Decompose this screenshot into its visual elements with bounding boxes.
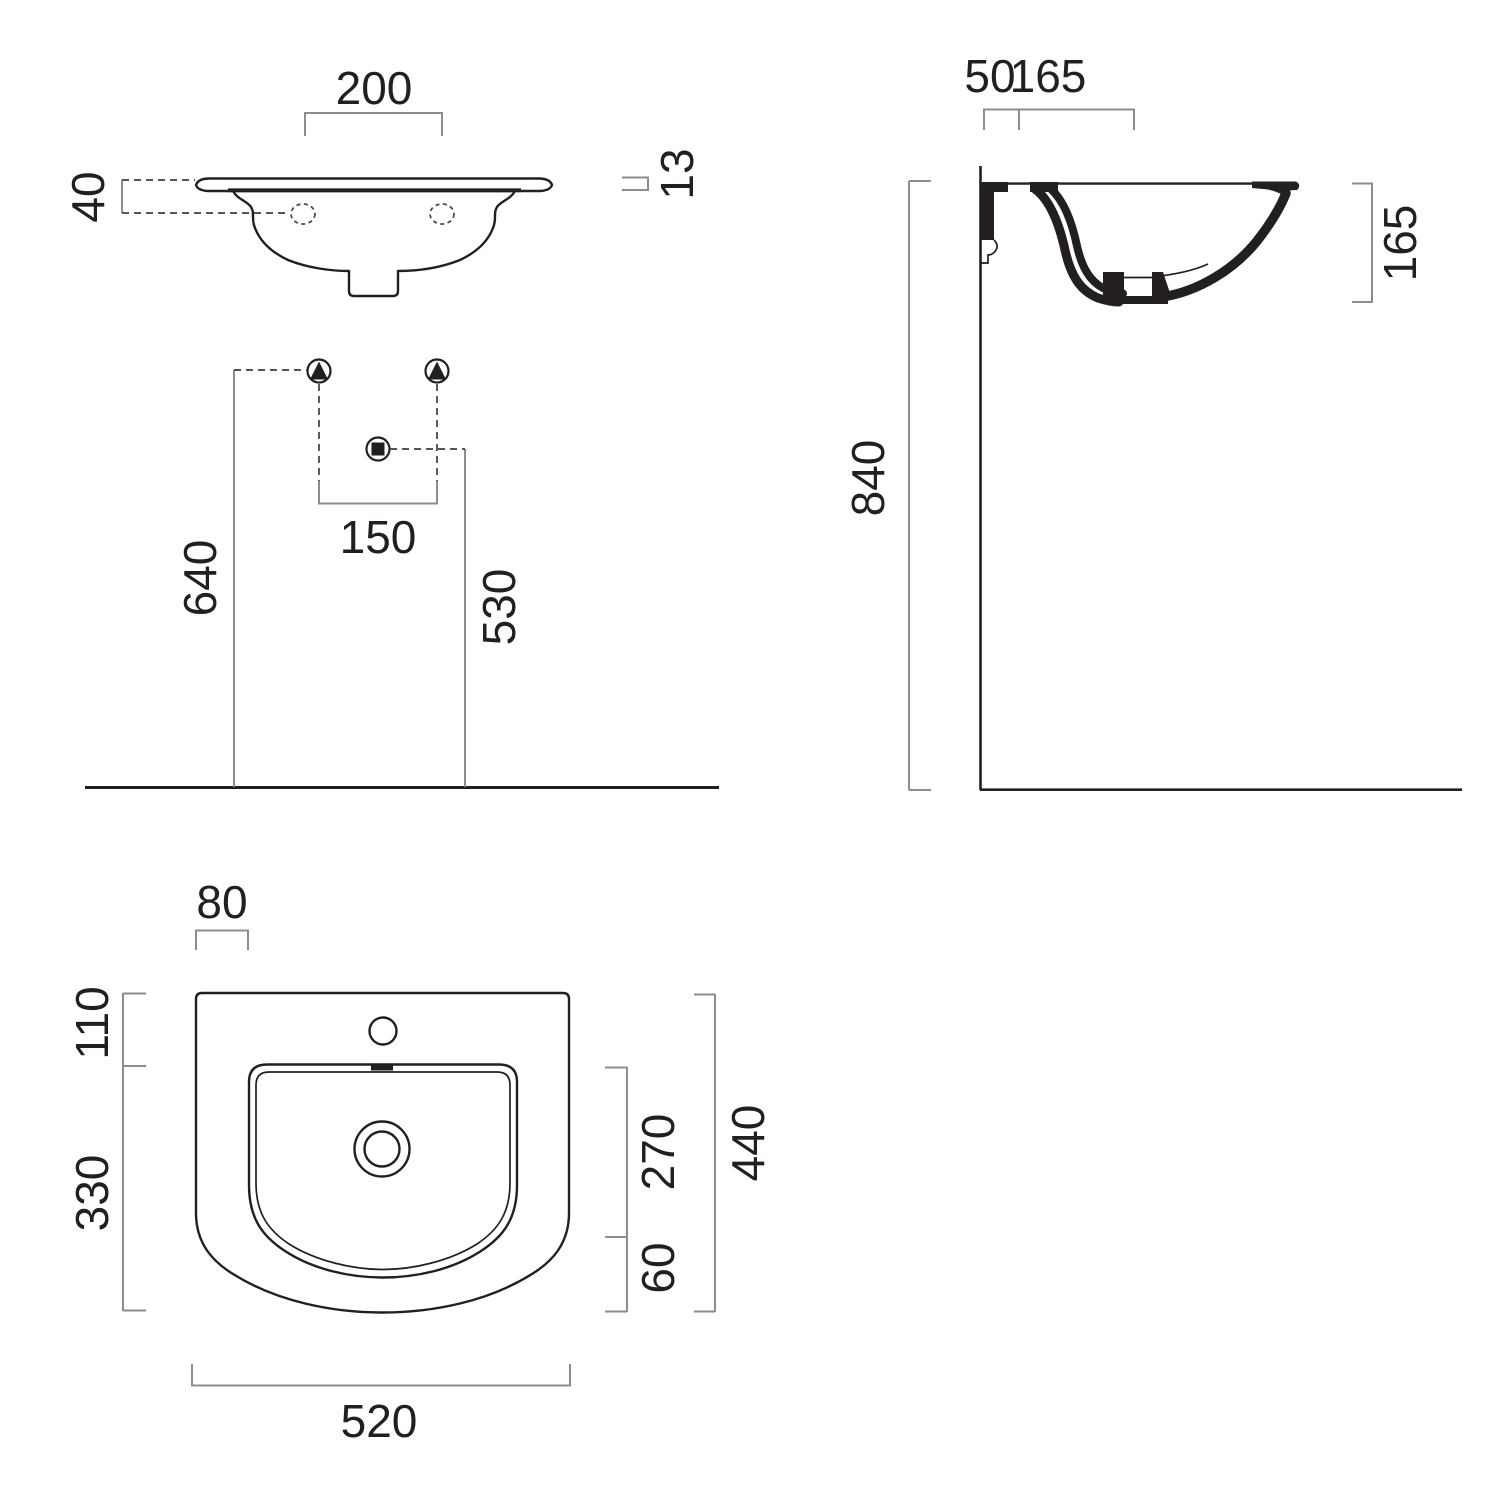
dim-440-line (694, 994, 715, 1312)
dim-label-200: 200 (336, 62, 413, 114)
dim-label-165-right: 165 (1374, 205, 1426, 282)
drawing-canvas: 200 40 13 1 (0, 0, 1500, 1500)
dim-label-60: 60 (632, 1242, 684, 1293)
dim-label-840: 840 (842, 440, 894, 517)
dim-110-330-line (123, 993, 146, 1311)
dim-label-165-top: 165 (1010, 50, 1087, 102)
dim-label-50: 50 (964, 50, 1015, 102)
dim-520-bracket (192, 1364, 570, 1386)
dim-label-520: 520 (341, 1395, 418, 1447)
dim-label-530: 530 (473, 569, 525, 646)
dim-80-bracket (196, 931, 248, 951)
plan-tap-hole (370, 1018, 397, 1045)
dim-label-60-group: 60 (632, 1242, 684, 1293)
dim-label-110-group: 110 (66, 986, 118, 1059)
plan-basin-outer (249, 1065, 517, 1278)
dim-label-40: 40 (62, 171, 114, 222)
dim-label-150: 150 (340, 511, 417, 563)
front-basin-body-outline (233, 191, 515, 296)
side-view: 50 165 165 840 (842, 50, 1462, 790)
dim-label-110: 110 (66, 986, 118, 1059)
dim-270-60-line (605, 1067, 627, 1312)
dim-label-330-group: 330 (66, 1155, 118, 1232)
water-supply-symbol-right (426, 360, 449, 383)
dim-label-640: 640 (174, 540, 226, 617)
front-view: 200 40 13 1 (62, 62, 719, 788)
dim-200-bracket (305, 113, 442, 136)
side-wall-strip (981, 183, 994, 240)
dim-label-13: 13 (651, 148, 703, 199)
dim-label-165-right-group: 165 (1374, 205, 1426, 282)
side-drain-bottom (1103, 296, 1168, 304)
dim-label-80: 80 (196, 876, 247, 928)
dim-840-line (909, 181, 931, 790)
dim-label-13-group: 13 (651, 148, 703, 199)
dim-label-330: 330 (66, 1155, 118, 1232)
dim-label-640-group: 640 (174, 540, 226, 617)
dim-150-bracket (319, 481, 437, 504)
dim-label-40-group: 40 (62, 171, 114, 222)
technical-drawing-washbasin: 200 40 13 1 (0, 0, 1500, 1500)
dim-50-165-bracket (984, 110, 1134, 131)
waste-outlet-symbol (367, 438, 390, 461)
side-wall-step-outline (981, 240, 997, 263)
dim-165-right-bracket (1352, 184, 1372, 303)
dim-label-840-group: 840 (842, 440, 894, 517)
dim-label-440: 440 (722, 1105, 774, 1182)
water-supply-symbol-left (308, 360, 331, 383)
dim-label-530-group: 530 (473, 569, 525, 646)
side-front-bowl-band (1165, 193, 1286, 297)
dim-label-270-group: 270 (632, 1114, 684, 1191)
plan-view: 80 110 330 270 60 440 520 (66, 876, 774, 1447)
dim-13-bracket (622, 178, 648, 191)
dim-label-440-group: 440 (722, 1105, 774, 1182)
side-front-rim-section (1252, 182, 1299, 198)
dim-label-270: 270 (632, 1114, 684, 1191)
